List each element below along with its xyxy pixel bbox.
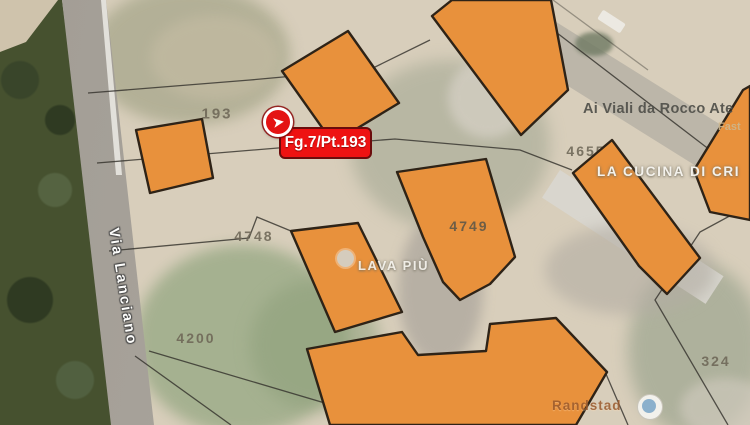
- cadastral-overlay: [0, 0, 750, 425]
- poi-label-lava-piu[interactable]: LAVA PIÙ: [358, 259, 429, 272]
- parcel-number-193: 193: [201, 107, 232, 122]
- poi-label-fast[interactable]: Fast: [718, 122, 741, 133]
- parcel-number-4749: 4749: [449, 219, 488, 233]
- satellite-map-canvas[interactable]: 4655 193 4748 4749 4200 324 Ai: [0, 0, 750, 425]
- building-mid-left[interactable]: [291, 223, 402, 332]
- laundry-poi-icon[interactable]: [337, 250, 354, 267]
- poi-label-ai-viali-da-rocco[interactable]: Ai Viali da Rocco Ate: [583, 102, 734, 117]
- parcel-number-324: 324: [701, 354, 730, 368]
- cadastral-marker-label[interactable]: Fg.7/Pt.193: [279, 127, 372, 159]
- building-top-right[interactable]: [432, 0, 568, 135]
- parcel-number-4748: 4748: [234, 229, 273, 243]
- arrow-icon: ➤: [271, 112, 286, 132]
- poi-label-la-cucina-di-cri[interactable]: LA CUCINA DI CRI: [597, 165, 740, 179]
- map-marker-pin[interactable]: ➤: [263, 107, 293, 137]
- parcel-number-4200: 4200: [176, 331, 215, 345]
- randstad-poi-icon-inner: [642, 399, 656, 413]
- parcel-line: [553, 0, 648, 70]
- building-parcel-193-small[interactable]: [136, 119, 213, 193]
- poi-label-randstad[interactable]: Randstad: [552, 399, 622, 413]
- parcel-line: [135, 356, 231, 425]
